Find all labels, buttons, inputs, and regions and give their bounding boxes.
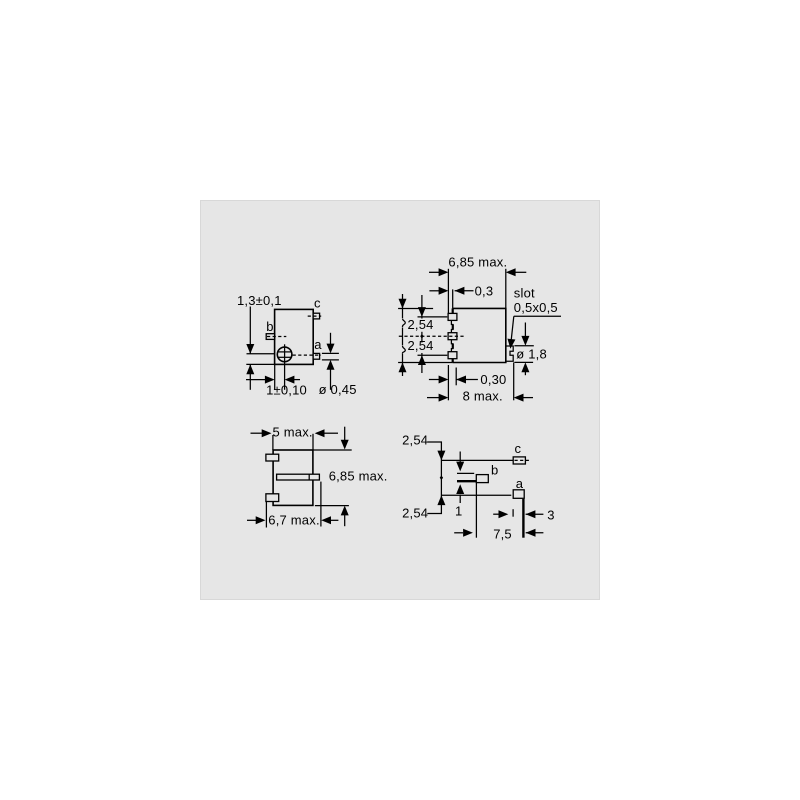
svg-text:b: b (266, 319, 273, 334)
svg-text:slot: slot (514, 286, 535, 301)
svg-text:0,30: 0,30 (480, 372, 506, 387)
svg-text:7,5: 7,5 (493, 527, 512, 542)
svg-text:2,54: 2,54 (402, 506, 428, 521)
svg-text:8 max.: 8 max. (463, 389, 503, 404)
svg-text:5 max.: 5 max. (273, 424, 313, 439)
svg-text:a: a (516, 476, 524, 491)
svg-text:6,85 max.: 6,85 max. (448, 255, 507, 270)
svg-text:a: a (314, 337, 322, 352)
svg-text:1,3±0,1: 1,3±0,1 (237, 293, 282, 308)
svg-text:3: 3 (547, 507, 554, 522)
svg-text:2,54: 2,54 (402, 432, 428, 447)
svg-text:1: 1 (455, 504, 462, 519)
svg-text:c: c (515, 441, 522, 456)
svg-text:6,85 max.: 6,85 max. (329, 469, 388, 484)
svg-text:0,3: 0,3 (475, 284, 494, 299)
svg-text:2,54: 2,54 (408, 317, 434, 332)
svg-text:ø 0,45: ø 0,45 (319, 382, 357, 397)
svg-text:c: c (314, 296, 321, 311)
svg-text:2,54: 2,54 (408, 338, 434, 353)
svg-text:ø 1,8: ø 1,8 (516, 347, 547, 362)
svg-text:1±0,10: 1±0,10 (266, 383, 307, 398)
svg-text:0,5x0,5: 0,5x0,5 (514, 300, 558, 315)
svg-text:b: b (491, 463, 498, 478)
svg-text:6,7 max.: 6,7 max. (268, 512, 319, 527)
